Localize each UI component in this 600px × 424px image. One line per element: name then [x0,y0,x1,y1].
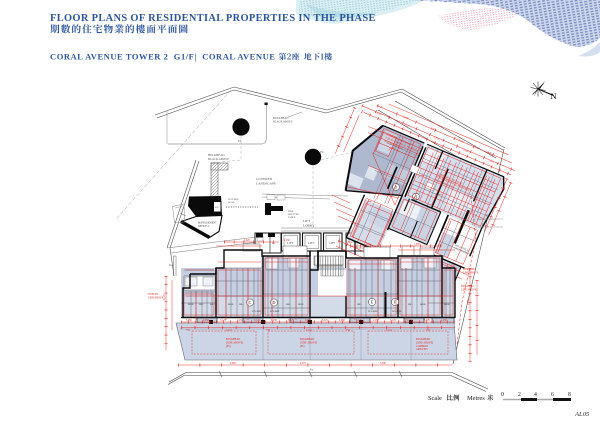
svg-text:LIV/DIN: LIV/DIN [252,310,261,313]
svg-text:3,125: 3,125 [254,319,261,322]
svg-text:LOBBY: LOBBY [303,224,315,228]
svg-text:OFFICE 2: OFFICE 2 [198,225,210,228]
svg-text:Scale: Scale [428,395,442,402]
svg-text:2,250: 2,250 [407,319,414,322]
svg-text:2,350: 2,350 [284,239,291,242]
svg-text:2,925: 2,925 [485,150,492,155]
svg-text:(P5): (P5) [300,345,305,348]
svg-text:MBR: MBR [228,303,234,306]
svg-text:BLACK ABOVE: BLACK ABOVE [208,157,229,161]
svg-text:2,110: 2,110 [306,329,312,332]
svg-text:C: C [249,300,252,305]
svg-text:LIFT: LIFT [303,219,311,223]
svg-text:2,125: 2,125 [403,123,410,128]
svg-text:COVERED: COVERED [256,177,273,181]
svg-text:2,110: 2,110 [386,329,392,332]
svg-text:3,050: 3,050 [186,319,193,322]
svg-text:0: 0 [501,392,504,398]
svg-text:4: 4 [534,392,537,398]
svg-text:LINE ABOVE: LINE ABOVE [463,271,479,274]
svg-text:5,000: 5,000 [380,362,387,365]
svg-text:LIFT: LIFT [329,241,336,245]
svg-text:WALL: WALL [228,201,235,204]
svg-text:MBR: MBR [444,303,450,306]
svg-text:2,240: 2,240 [462,148,469,153]
svg-text:BR1: BR1 [357,303,362,306]
svg-text:2: 2 [518,392,521,398]
svg-text:AL05: AL05 [574,411,590,418]
svg-text:Fa: Fa [310,368,314,372]
svg-text:CORAL AVENUE TOWER 2 G1/F| C: CORAL AVENUE TOWER 2 G1/F| CORAL AVENUE [50,52,275,62]
svg-text:LIV/DIN: LIV/DIN [270,310,279,313]
svg-text:Metres: Metres [467,395,485,402]
svg-text:1,925: 1,925 [244,239,251,242]
svg-text:P.D.: P.D. [215,206,219,209]
svg-text:LANDSCAPE: LANDSCAPE [256,182,276,186]
svg-text:3,125: 3,125 [377,104,384,109]
svg-text:BR1: BR1 [408,303,413,306]
svg-text:1,975: 1,975 [488,159,495,164]
svg-text:3,125: 3,125 [288,319,295,322]
svg-text:2,250: 2,250 [203,319,210,322]
svg-text:2,250: 2,250 [305,319,312,322]
svg-text:2,250: 2,250 [271,319,278,322]
svg-text:MBR: MBR [188,303,194,306]
svg-text:2,862: 2,862 [230,362,237,365]
svg-text:AREA P05: AREA P05 [416,348,428,351]
svg-text:P6: P6 [320,150,324,154]
svg-text:3,125: 3,125 [163,293,166,300]
svg-text:3,125: 3,125 [220,319,227,322]
svg-text:2,250: 2,250 [441,319,448,322]
svg-text:N: N [551,92,557,101]
svg-text:3,125: 3,125 [322,319,329,322]
svg-text:1,850: 1,850 [433,136,440,141]
svg-text:6: 6 [551,392,554,398]
svg-text:2,250: 2,250 [237,319,244,322]
svg-text:MBR: MBR [420,303,426,306]
svg-text:3,075: 3,075 [430,127,437,132]
svg-text:3,150: 3,150 [458,139,465,144]
svg-text:BR2: BR2 [210,303,215,306]
svg-text:2,110: 2,110 [226,329,232,332]
svg-text:2,110: 2,110 [364,243,370,246]
svg-text:P.A.: P.A. [169,264,174,267]
svg-text:BR1: BR1 [239,303,244,306]
svg-text:2,250: 2,250 [467,298,470,305]
svg-text:3,125: 3,125 [424,319,431,322]
svg-text:3,125: 3,125 [356,319,363,322]
svg-text:LINE ABOVE: LINE ABOVE [148,296,164,299]
svg-text:PANEL: PANEL [288,216,296,219]
svg-text:LIV/DIN: LIV/DIN [368,310,377,313]
svg-text:LIFT: LIFT [308,241,315,245]
svg-text:2,250: 2,250 [373,319,380,322]
svg-text:FLOOR PLANS OF RESIDENTIAL PRO: FLOOR PLANS OF RESIDENTIAL PROPERTIES IN… [50,13,376,24]
svg-text:2,250: 2,250 [339,319,346,322]
svg-text:8: 8 [568,392,571,398]
svg-text:(P5): (P5) [226,345,231,348]
svg-text:D: D [273,300,276,305]
svg-text:P5: P5 [238,139,242,143]
svg-text:BR1: BR1 [199,303,204,306]
svg-text:3,125: 3,125 [390,319,397,322]
svg-text:4,075: 4,075 [300,362,307,365]
svg-text:BR1: BR1 [286,303,291,306]
svg-text:MBR: MBR [298,303,304,306]
svg-text:BLACK ABOVE: BLACK ABOVE [273,121,293,124]
svg-text:Fb: Fb [486,214,490,218]
svg-text:2,950: 2,950 [402,115,409,120]
svg-text:1,850: 1,850 [414,243,421,246]
svg-text:LINE ABOVE: LINE ABOVE [461,288,477,291]
